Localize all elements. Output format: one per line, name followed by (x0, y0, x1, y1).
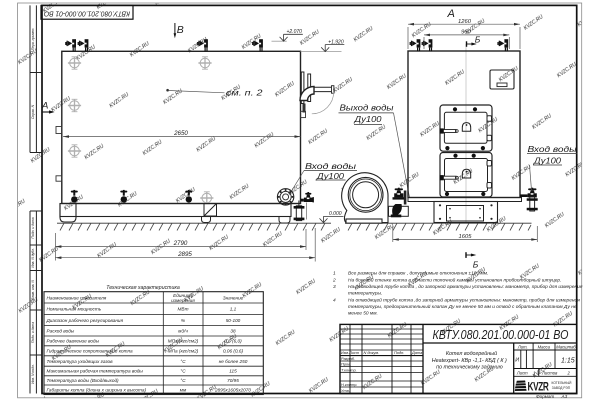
svg-text:Номинальная мощность: Номинальная мощность (47, 307, 102, 312)
svg-text:+1.920: +1.920 (328, 40, 344, 46)
svg-text:1605: 1605 (459, 234, 473, 240)
svg-text:Изм.Лист: Изм.Лист (341, 350, 360, 355)
svg-text:Лит.: Лит. (517, 345, 528, 350)
svg-text:И: И (515, 358, 519, 364)
svg-text:Температура воды (Вход/выход): Температура воды (Вход/выход) (47, 378, 120, 383)
svg-text:°С: °С (180, 359, 186, 364)
svg-text:температуры, предохранительный: температуры, предохранительный клапан Ду… (348, 303, 577, 310)
svg-text:115: 115 (229, 369, 237, 374)
svg-text:МПа (кгс/см2): МПа (кгс/см2) (168, 339, 199, 344)
svg-text:Утв.: Утв. (341, 388, 350, 393)
svg-text:мм: мм (180, 388, 187, 393)
svg-text:не более 250: не более 250 (219, 359, 248, 364)
svg-text:2895х1605х2070: 2895х1605х2070 (214, 388, 251, 393)
svg-text:измерения: измерения (171, 298, 195, 303)
svg-text:Ду100: Ду100 (353, 114, 381, 124)
svg-text:°С: °С (180, 369, 186, 374)
svg-text:В: В (177, 24, 184, 36)
svg-text:Подп. и дата: Подп. и дата (31, 322, 35, 343)
svg-text:Формат: Формат (536, 394, 554, 399)
svg-text:Heatexpert- КВр -1,1- КБД ( К: Heatexpert- КВр -1,1- КБД ( К ) (432, 358, 507, 364)
svg-text:960: 960 (461, 29, 471, 35)
svg-text:Лист: Лист (516, 370, 528, 375)
svg-text:%: % (181, 318, 185, 323)
svg-text:А: А (41, 101, 48, 112)
svg-text:КВТУ.080.201.00.000-01 ВО: КВТУ.080.201.00.000-01 ВО (44, 9, 130, 18)
svg-text:Б: Б (475, 34, 481, 44)
svg-text:0.000: 0.000 (329, 211, 342, 217)
svg-text:Техническая характеристика: Техническая характеристика (106, 285, 180, 291)
svg-text:КОТЕЛЬНЫЙ: КОТЕЛЬНЫЙ (552, 381, 573, 385)
svg-text:Рабочее давление воды: Рабочее давление воды (47, 339, 100, 344)
svg-text:см. п. 2: см. п. 2 (226, 87, 263, 97)
svg-text:N докум.: N докум. (364, 350, 380, 355)
svg-text:4: 4 (333, 297, 336, 303)
svg-text:Взам. инв. N: Взам. инв. N (31, 280, 35, 300)
svg-text:1,1: 1,1 (230, 307, 237, 312)
svg-text:2895: 2895 (177, 251, 192, 258)
svg-text:Инв. N дубл.: Инв. N дубл. (31, 248, 35, 268)
svg-text:1: 1 (333, 271, 336, 277)
svg-text:Наименование показателя: Наименование показателя (47, 295, 107, 300)
svg-text:м3/ч: м3/ч (178, 329, 188, 334)
svg-text:Вход воды: Вход воды (528, 144, 578, 154)
svg-text:1: 1 (533, 370, 535, 375)
svg-text:Масса: Масса (538, 345, 551, 350)
svg-text:2: 2 (332, 277, 336, 283)
svg-text:Вход воды: Вход воды (305, 161, 357, 171)
svg-text:Гидравлическое сопротивление к: Гидравлическое сопротивление котла (47, 349, 134, 354)
svg-text:Максимальная рабочая температу: Максимальная рабочая температура воды (47, 369, 144, 374)
svg-text:А: А (447, 8, 455, 20)
svg-text:ЗАВОД РЭП: ЗАВОД РЭП (552, 386, 571, 390)
svg-text:°С: °С (180, 378, 186, 383)
svg-text:Выход воды: Выход воды (340, 103, 395, 113)
svg-text:0,6 (6,0): 0,6 (6,0) (224, 339, 242, 344)
svg-text:Подп. и дата: Подп. и дата (31, 217, 35, 238)
svg-text:2790: 2790 (173, 240, 188, 247)
svg-text:На отводящей трубе котла ,до з: На отводящей трубе котла ,до запорной ар… (348, 296, 580, 303)
svg-text:Справ. N: Справ. N (31, 104, 35, 119)
svg-text:Все размеры для справок , допу: Все размеры для справок , допустимые отк… (348, 271, 488, 277)
svg-text:А3: А3 (561, 394, 568, 399)
svg-text:50-100: 50-100 (226, 318, 241, 323)
svg-text:по техническому заданию: по техническому заданию (436, 365, 503, 371)
svg-text:МПа (кгс/см2): МПа (кгс/см2) (168, 349, 199, 354)
svg-text:Разраб.: Разраб. (341, 356, 355, 361)
svg-text:Габариты котла (длина х ширина: Габариты котла (длина х ширина х высота) (47, 388, 147, 393)
svg-text:Инв. N подл.: Инв. N подл. (31, 364, 35, 384)
svg-text:На подводящей трубе котла ,: На подводящей трубе котла , до запорной … (348, 283, 583, 290)
svg-text:2650: 2650 (173, 130, 188, 137)
svg-text:КВТУ.080.201.00.000-01 ВО: КВТУ.080.201.00.000-01 ВО (433, 328, 569, 342)
svg-text:KVZR: KVZR (528, 380, 549, 394)
svg-text:Подп.: Подп. (394, 350, 404, 355)
svg-text:+2.070: +2.070 (287, 29, 303, 35)
svg-text:Б: Б (473, 260, 479, 270)
svg-text:Масштаб: Масштаб (556, 345, 576, 350)
svg-text:Значение: Значение (223, 295, 244, 300)
svg-text:Расход воды: Расход воды (47, 329, 75, 334)
svg-text:1:15: 1:15 (561, 357, 575, 364)
svg-text:Котел водогрейный: Котел водогрейный (446, 350, 497, 357)
svg-text:Т.контр.: Т.контр. (341, 367, 357, 372)
svg-text:Диапазон рабочего регулировани: Диапазон рабочего регулирования (46, 318, 124, 323)
svg-text:На боковой стенке котла в обла: На боковой стенке котла в области топочн… (348, 276, 561, 283)
svg-text:0,06 (0,6): 0,06 (0,6) (223, 349, 244, 354)
svg-text:Дата: Дата (411, 350, 423, 355)
svg-text:Ду100: Ду100 (316, 171, 344, 181)
svg-text:Ду100: Ду100 (533, 156, 561, 166)
svg-text:МВт: МВт (178, 307, 189, 312)
svg-text:температуры.: температуры. (348, 292, 382, 297)
svg-text:Н.контр.: Н.контр. (341, 382, 357, 387)
svg-text:70/95: 70/95 (227, 378, 239, 383)
svg-text:1260: 1260 (458, 19, 472, 25)
svg-text:менее 50 мм.: менее 50 мм. (348, 310, 378, 316)
svg-text:Листов: Листов (541, 370, 558, 375)
svg-text:Температура уходящих газов: Температура уходящих газов (47, 359, 114, 364)
svg-text:Пров.: Пров. (341, 362, 351, 367)
svg-text:Перв. примен.: Перв. примен. (31, 28, 35, 51)
svg-text:38: 38 (230, 329, 236, 334)
svg-text:3: 3 (333, 284, 336, 290)
